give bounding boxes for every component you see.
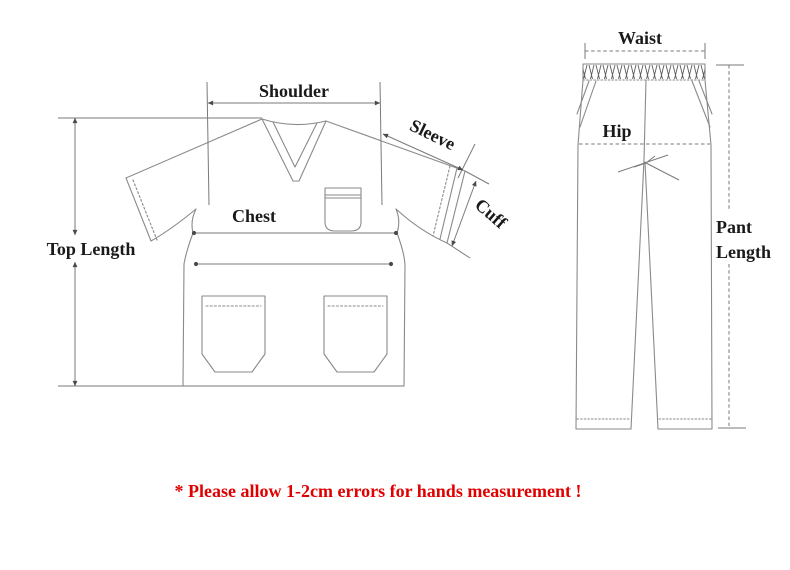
left-sleeve-underarm [151, 209, 196, 241]
left-sleeve-end-edge [126, 178, 151, 241]
right-sleeve-stitch-line [433, 166, 450, 236]
scrub-top-figure: Shoulder Top Length Chest Sleeve Cuff [47, 81, 512, 386]
right-sleeve-underarm [396, 209, 447, 243]
shirt-left-shoulder-edge [126, 119, 262, 178]
pants-center-fly-line [644, 80, 646, 160]
shirt-right-body-side [396, 209, 405, 386]
waist-label: Waist [618, 28, 662, 48]
cuff-extension-top [465, 171, 489, 184]
shirt-left-body-side [183, 209, 196, 386]
cuff-dimension-line [452, 181, 476, 246]
v-neck-collar-inner [273, 122, 317, 167]
shoulder-extension-right [380, 82, 382, 205]
pants-left-outer-seam [576, 80, 583, 429]
pant-length-label-line2: Length [716, 242, 771, 262]
chest-pocket-flap-lines [325, 195, 361, 198]
shoulder-extension-left [207, 82, 209, 205]
pant-length-label-line1: Pant [716, 217, 752, 237]
right-sleeve-end-edge [447, 171, 465, 243]
left-sleeve-stitch-line [133, 180, 157, 240]
crotch-arrow-mark [618, 155, 679, 180]
left-leg-inseam [631, 160, 644, 429]
size-chart-page: Shoulder Top Length Chest Sleeve Cuff [0, 0, 790, 570]
measurement-note: * Please allow 1-2cm errors for hands me… [175, 481, 582, 501]
pant-length-label: Pant Length [716, 217, 771, 262]
pants-drawing [576, 64, 712, 429]
right-cuff-band-line [440, 168, 457, 239]
crotch-arrow-stroke-2 [646, 163, 679, 180]
cuff-extension-bottom [447, 243, 470, 258]
pants-right-outer-seam [705, 80, 712, 429]
top-length-label: Top Length [47, 239, 136, 259]
right-lower-pocket [324, 296, 387, 372]
size-chart-diagram: Shoulder Top Length Chest Sleeve Cuff [0, 0, 790, 570]
shoulder-label: Shoulder [259, 81, 329, 101]
hip-label: Hip [602, 121, 631, 141]
right-leg-inseam [645, 162, 658, 429]
pants-figure: Waist Hip Pant Length [576, 28, 771, 429]
v-neck-collar-outer [262, 119, 326, 181]
waistband-elastic [583, 64, 705, 80]
left-lower-pocket [202, 296, 265, 372]
sleeve-extension-line [458, 144, 475, 178]
chest-label: Chest [232, 206, 276, 226]
cuff-label: Cuff [471, 194, 511, 233]
